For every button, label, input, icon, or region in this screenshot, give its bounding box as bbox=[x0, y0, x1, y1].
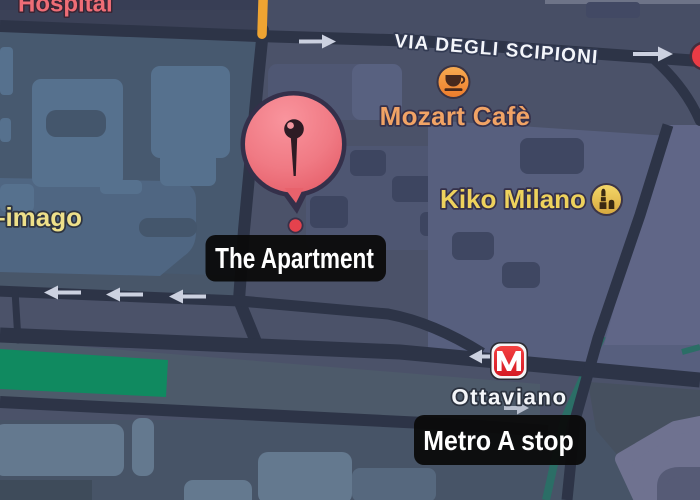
svg-text:Hospital: Hospital bbox=[18, 0, 113, 18]
svg-text:–imago: –imago bbox=[0, 202, 82, 232]
svg-text:Mozart Cafè: Mozart Cafè bbox=[380, 101, 531, 131]
svg-text:Metro A stop: Metro A stop bbox=[423, 425, 573, 457]
svg-text:The Apartment: The Apartment bbox=[215, 241, 374, 274]
svg-text:Ottaviano: Ottaviano bbox=[451, 385, 567, 410]
svg-text:Kiko Milano: Kiko Milano bbox=[440, 184, 586, 214]
